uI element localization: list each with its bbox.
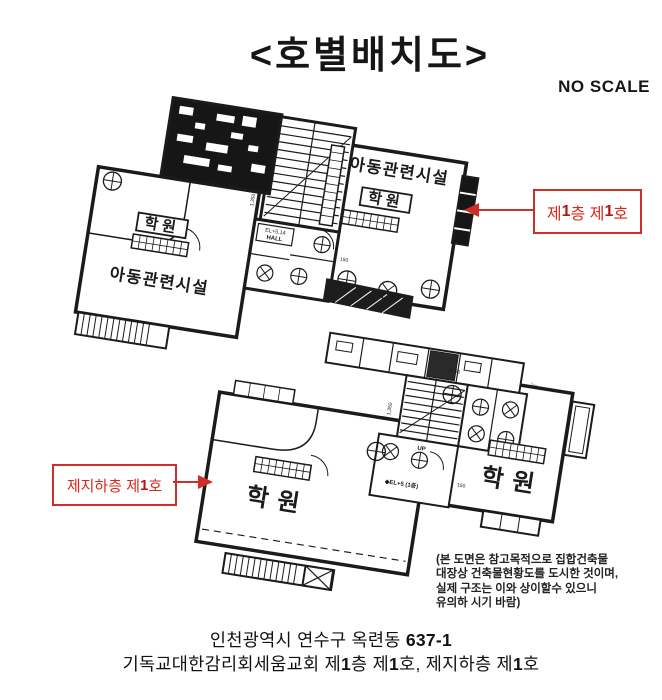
address-text: 기독교대한감리회세움교회 제 — [123, 654, 341, 674]
disclaimer-line: 유의하 시기 바람) — [436, 596, 618, 610]
no-scale-note: NO SCALE — [528, 77, 650, 97]
address-text: 1 — [389, 654, 399, 674]
address-text: 호, 제지하층 제 — [399, 654, 513, 674]
callout-text: 층 제 — [571, 200, 605, 224]
callout-text: 1 — [562, 203, 571, 221]
address-text: 1 — [341, 654, 351, 674]
address-text: 인천광역시 연수구 옥련동 — [210, 630, 406, 650]
unit-layout-drawing-page: <호별배치도> NO SCALE 교시의 하 문서는 김포시 없습 — [0, 0, 662, 700]
callout-leader-line — [173, 481, 199, 483]
property-address: 인천광역시 연수구 옥련동 637-1 — [0, 627, 662, 652]
building-unit-line: 기독교대한감리회세움교회 제1층 제1호, 제지하층 제1호 — [0, 651, 662, 676]
address-lot-number: 637-1 — [406, 630, 452, 650]
arrow-right-icon — [198, 475, 213, 489]
disclaimer-note: (본 도면은 참고목적으로 집합건축물 대장상 건축물현황도를 도시한 것이며,… — [436, 553, 618, 611]
callout-text: 호 — [148, 475, 162, 496]
address-text: 호 — [523, 654, 539, 674]
first-floor-unit-callout: 제1층 제1호 — [533, 189, 642, 234]
address-text: 1 — [513, 654, 523, 674]
callout-text: 1 — [140, 477, 148, 494]
dimension-text: 1,350 — [386, 402, 394, 416]
disclaimer-line: 대장상 건축물현황도를 도시한 것이며, — [436, 567, 618, 581]
stairwell — [397, 375, 468, 446]
page-title: <호별배치도> — [250, 24, 490, 79]
disclaimer-line: 실제 구조는 이와 상이할수 있으니 — [436, 582, 618, 596]
first-floor-plan: 학원 아동관련시설 학원 아동관련시설 EL+5.14 HALL 1,350 1… — [55, 92, 495, 352]
disclaimer-line: (본 도면은 참고목적으로 집합건축물 — [436, 553, 618, 567]
callout-text: 제 — [547, 200, 562, 224]
callout-text: 1 — [604, 203, 613, 221]
address-text: 층 제 — [351, 654, 389, 674]
callout-text: 호 — [613, 200, 628, 224]
basement-unit-callout: 제지하층 제1호 — [52, 464, 177, 506]
dense-service-block — [161, 98, 282, 194]
callout-text: 제지하층 제 — [67, 475, 140, 496]
callout-leader-line — [477, 209, 533, 211]
